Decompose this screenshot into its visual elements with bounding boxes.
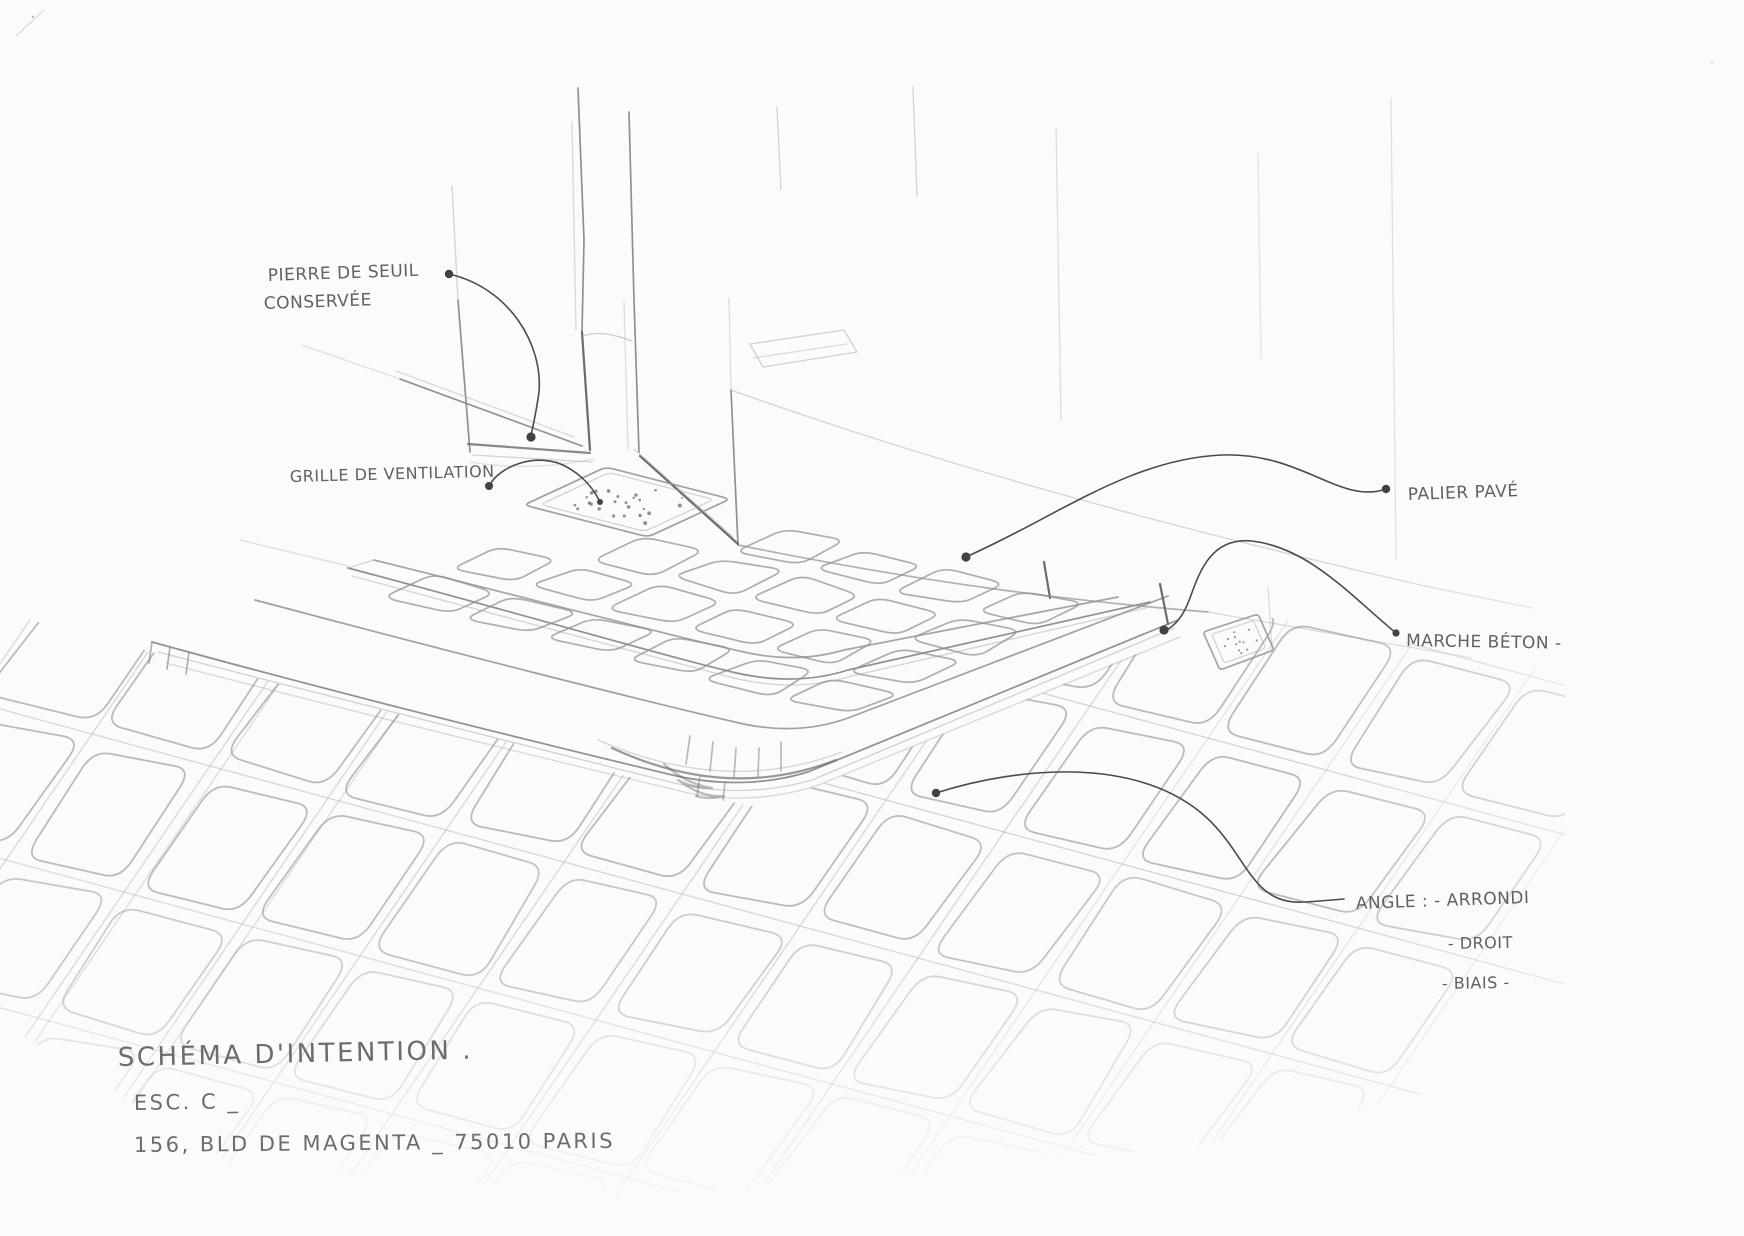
label-marche-beton: MARCHE BÉTON - [1406, 629, 1562, 654]
sidewalk-slab [939, 853, 1100, 972]
threshold-stone [468, 444, 590, 453]
grille-dot [623, 514, 626, 517]
sketch-paper: PIERRE DE SEUIL CONSERVÉE GRILLE DE VENT… [0, 0, 1744, 1236]
grille-dot [1234, 636, 1236, 638]
leader-dot [485, 482, 493, 490]
leader-palier-pave [968, 455, 1386, 556]
grille-dot [585, 496, 587, 498]
label-pierre-de-seuil-line1: PIERRE DE SEUIL [267, 261, 419, 286]
grille-dot [1233, 631, 1235, 633]
wall-corner-edge [731, 390, 738, 545]
leader-dot [961, 552, 970, 561]
grille-dot [1240, 652, 1242, 654]
sidewalk-slab [1143, 757, 1300, 879]
sidewalk-slab [990, 568, 1156, 687]
cobble [900, 570, 999, 602]
cobble [679, 561, 778, 593]
sidewalk-slab [438, 559, 596, 685]
grille-dot [1246, 649, 1248, 651]
sidewalk-slab [704, 782, 868, 906]
grille-dot [590, 491, 594, 495]
label-angle-line2: - DROIT [1448, 933, 1513, 953]
sketch-canvas: PIERRE DE SEUIL CONSERVÉE GRILLE DE VENT… [0, 0, 1744, 1236]
grille-dot [1239, 641, 1241, 643]
landing-border [240, 540, 1150, 685]
grille-dot [627, 505, 631, 509]
cobble [696, 610, 793, 643]
grille-dot [639, 514, 641, 516]
landing-right-corner [1044, 562, 1050, 598]
cobble [756, 577, 854, 613]
left-wall-base [400, 379, 582, 446]
grille-dot [643, 521, 647, 525]
sidewalk-slab [471, 718, 628, 841]
leader-dot [1382, 485, 1390, 493]
cobble [837, 600, 935, 633]
door-jamb-faint [572, 122, 576, 330]
sidewalk-slab [171, 342, 323, 466]
sidewalk-slab [112, 623, 274, 748]
door-jamb-left [578, 88, 584, 332]
grille-dot [589, 502, 592, 505]
grille-dot [576, 507, 579, 510]
cobble [552, 620, 651, 650]
grille-dot [574, 504, 577, 507]
landing-cobbles [389, 531, 1078, 711]
cobble [458, 549, 551, 580]
leader-dot [597, 499, 603, 505]
grille-dot [625, 501, 628, 504]
leader-dot [1392, 629, 1399, 636]
sidewalk-slab [0, 594, 160, 717]
grille-dot [654, 489, 657, 492]
cobble [389, 576, 489, 611]
wall-vent-box [750, 330, 857, 367]
grille-dot [1256, 639, 1258, 641]
grille-dot [638, 499, 641, 502]
cobble [821, 553, 916, 583]
grille-dot [1235, 643, 1237, 645]
label-grille-ventilation: GRILLE DE VENTILATION [290, 462, 495, 486]
grille-dot [1248, 629, 1250, 631]
grille-dot [632, 497, 634, 499]
concrete-step [149, 584, 1180, 800]
leader-dot [445, 270, 453, 278]
grille-dot [612, 514, 615, 517]
sidewalk-slab [148, 787, 307, 910]
grille-dot [1238, 649, 1240, 651]
sidewalk-slab [0, 723, 74, 841]
step-right-end [1160, 584, 1168, 624]
sidewalk-slab [231, 657, 395, 782]
facade-base-line [640, 456, 738, 544]
paper-artifacts [16, 10, 1713, 63]
ventilation-grille [527, 468, 727, 536]
grille-dot [597, 507, 601, 511]
grille-dot [614, 500, 617, 503]
grille-dot [1224, 645, 1226, 647]
callouts [445, 270, 1400, 902]
grille-dot [643, 508, 645, 510]
cobble [741, 531, 839, 563]
cobble [599, 539, 699, 575]
grille-dot [607, 489, 611, 493]
grille-dot [634, 493, 637, 496]
sidewalk-slab [196, 496, 359, 627]
sidewalk-slab [824, 816, 981, 939]
grille-dot [678, 504, 682, 508]
label-palier-pave: PALIER PAVÉ [1407, 479, 1519, 505]
sidewalk-slab [674, 625, 831, 751]
leader-dot [526, 432, 535, 441]
cobble [537, 570, 632, 600]
left-wall-edge [452, 186, 458, 300]
grille-dot [1242, 641, 1244, 643]
label-pierre-de-seuil-line2: CONSERVÉE [263, 288, 372, 314]
door-jamb-right [629, 112, 639, 452]
grille-dot [616, 495, 619, 498]
sidewalk-slab [524, 434, 685, 565]
grille-dot [647, 511, 651, 515]
label-angle-line3: - BIAIS - [1442, 973, 1510, 993]
door-jamb-left-base [582, 332, 590, 450]
grille-dot [1227, 638, 1229, 640]
leader-dot [932, 789, 940, 797]
cobble [612, 586, 715, 621]
sidewalk-slab [86, 471, 238, 590]
sidewalk-slab [379, 843, 539, 976]
leader-dot [1159, 625, 1168, 634]
title-line2: ESC. C _ [134, 1089, 241, 1116]
grille-dot [681, 497, 683, 499]
